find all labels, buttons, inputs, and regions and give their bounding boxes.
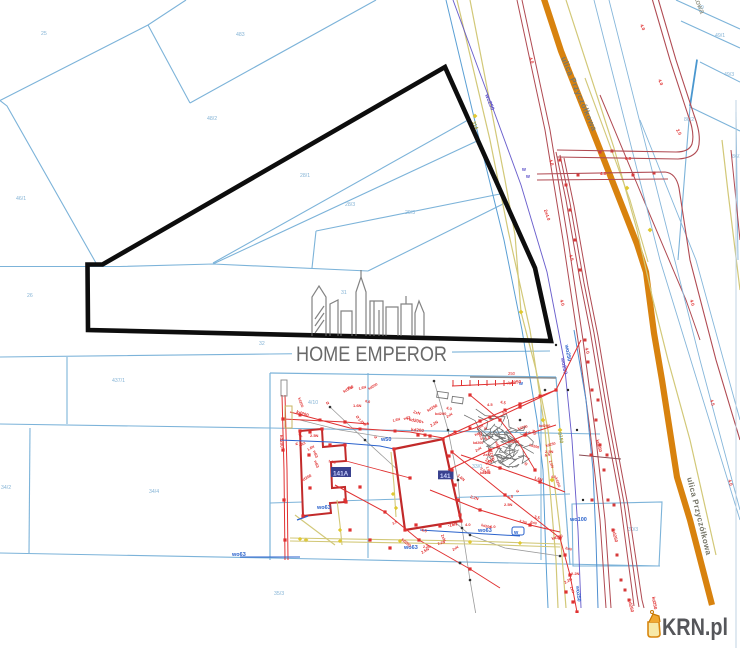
svg-text:2xN: 2xN — [413, 409, 421, 416]
svg-text:141: 141 — [440, 473, 451, 480]
svg-text:2xN: 2xN — [565, 546, 573, 552]
svg-text:250: 250 — [508, 371, 516, 376]
svg-text:25: 25 — [41, 31, 47, 37]
svg-text:kd250: kd250 — [595, 439, 603, 453]
svg-text:1.6N: 1.6N — [358, 385, 367, 391]
svg-text:4.0: 4.0 — [689, 299, 696, 307]
svg-text:6.0: 6.0 — [490, 524, 496, 529]
svg-text:4.0: 4.0 — [639, 23, 646, 31]
svg-text:-16N: -16N — [447, 521, 457, 528]
svg-text:N: N — [325, 400, 330, 406]
svg-text:N: N — [516, 489, 521, 494]
svg-text:w: w — [513, 530, 519, 536]
svg-text:4.0: 4.0 — [446, 405, 453, 411]
svg-text:4.0: 4.0 — [727, 479, 734, 487]
svg-text:w: w — [525, 174, 530, 180]
svg-text:w63: w63 — [494, 440, 502, 450]
svg-text:2xN: 2xN — [446, 412, 454, 419]
svg-text:4.0: 4.0 — [507, 493, 514, 499]
svg-text:28/3: 28/3 — [345, 202, 355, 208]
svg-text:kd250: kd250 — [342, 383, 355, 393]
svg-text:26: 26 — [27, 293, 33, 299]
svg-text:2xN: 2xN — [483, 452, 490, 457]
svg-text:30/3: 30/3 — [628, 527, 638, 533]
svg-text:2xN: 2xN — [452, 545, 460, 552]
svg-text:kd250: kd250 — [508, 439, 520, 444]
svg-text:437/1: 437/1 — [112, 378, 125, 384]
svg-text:4.0: 4.0 — [531, 429, 538, 437]
svg-text:49/1: 49/1 — [715, 33, 725, 39]
svg-text:4.0: 4.0 — [548, 159, 555, 167]
svg-text:kd200: kd200 — [297, 397, 304, 408]
svg-text:35/3: 35/3 — [274, 591, 284, 597]
svg-text:kd200: kd200 — [551, 533, 564, 541]
svg-text:+kd200+: +kd200+ — [406, 416, 425, 425]
svg-text:4.5: 4.5 — [487, 402, 493, 407]
svg-text:ulica Przyczółkowa: ulica Przyczółkowa — [559, 55, 599, 132]
svg-text:2.2N: 2.2N — [571, 571, 580, 576]
svg-text:2.2N: 2.2N — [470, 494, 480, 501]
svg-text:2.5N: 2.5N — [504, 502, 513, 507]
svg-text:4.0: 4.0 — [528, 57, 535, 65]
svg-text:141A: 141A — [333, 471, 349, 478]
svg-text:34/4: 34/4 — [149, 489, 159, 495]
svg-text:kd200: kd200 — [529, 443, 540, 450]
svg-text:kd250: kd250 — [611, 529, 619, 543]
svg-text:48/2: 48/2 — [207, 116, 217, 122]
svg-text:4.0: 4.0 — [600, 171, 607, 176]
svg-text:kd200: kd200 — [296, 409, 310, 418]
svg-text:kd200: kd200 — [279, 435, 284, 448]
svg-text:2xN: 2xN — [475, 446, 483, 453]
svg-text:4.5: 4.5 — [709, 399, 716, 407]
svg-text:w: w — [521, 167, 526, 173]
svg-text:483: 483 — [236, 32, 245, 38]
svg-text:4.5: 4.5 — [568, 254, 575, 262]
svg-text:32: 32 — [259, 341, 265, 347]
svg-text:4.0: 4.0 — [465, 522, 471, 527]
svg-text:2.5N: 2.5N — [310, 433, 319, 438]
svg-text:kd200: kd200 — [539, 423, 551, 428]
svg-text:kd200: kd200 — [473, 441, 483, 445]
svg-text:kd200: kd200 — [368, 382, 379, 391]
svg-text:31: 31 — [341, 290, 347, 296]
svg-text:1.6N: 1.6N — [392, 417, 401, 423]
svg-text:4.5: 4.5 — [500, 399, 507, 405]
svg-text:6.0: 6.0 — [625, 156, 632, 161]
svg-text:4/10: 4/10 — [308, 400, 318, 406]
svg-text:2.0: 2.0 — [675, 128, 683, 136]
svg-text:2.2N: 2.2N — [429, 419, 439, 428]
svg-text:6.0: 6.0 — [365, 399, 371, 404]
svg-text:3.5: 3.5 — [392, 520, 398, 526]
svg-text:49/3: 49/3 — [724, 72, 734, 78]
svg-text:3.5: 3.5 — [534, 514, 541, 520]
svg-text:29/3: 29/3 — [405, 210, 415, 216]
svg-text:wo63: wo63 — [231, 552, 246, 558]
svg-text:2.5N: 2.5N — [548, 460, 554, 469]
svg-text:4.0: 4.0 — [657, 78, 664, 86]
svg-text:g150: g150 — [557, 432, 564, 444]
svg-text:N: N — [484, 426, 489, 431]
svg-text:wo250: wo250 — [483, 93, 495, 112]
svg-text:KRN.pl: KRN.pl — [662, 614, 728, 641]
svg-text:1.6N: 1.6N — [353, 403, 362, 408]
svg-text:34/2: 34/2 — [1, 485, 11, 491]
svg-text:wo63: wo63 — [316, 505, 331, 511]
svg-text:2x4.0: 2x4.0 — [543, 209, 551, 222]
svg-text:kd250: kd250 — [545, 441, 556, 448]
svg-text:4.5: 4.5 — [363, 420, 370, 426]
svg-text:4.0: 4.0 — [559, 299, 566, 307]
svg-text:w50: w50 — [380, 437, 391, 443]
svg-text:HOME EMPEROR: HOME EMPEROR — [296, 343, 447, 366]
svg-text:2.2N: 2.2N — [423, 545, 431, 549]
svg-text:46/1: 46/1 — [16, 196, 26, 202]
svg-text:kd250: kd250 — [651, 596, 658, 610]
svg-text:28/1: 28/1 — [300, 173, 310, 179]
svg-text:2.2N: 2.2N — [519, 519, 528, 525]
svg-text:wo100: wo100 — [569, 517, 587, 523]
